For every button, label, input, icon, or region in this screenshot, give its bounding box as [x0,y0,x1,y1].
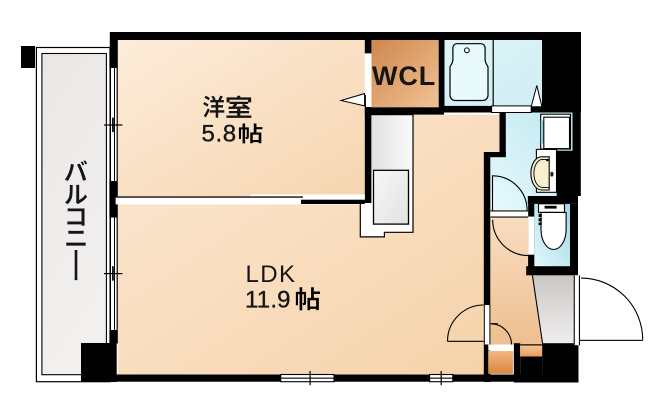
svg-text:LDK: LDK [246,261,297,288]
svg-text:5.8: 5.8 [202,120,237,147]
svg-text:11.9: 11.9 [245,287,291,314]
svg-text:WCL: WCL [372,61,436,91]
